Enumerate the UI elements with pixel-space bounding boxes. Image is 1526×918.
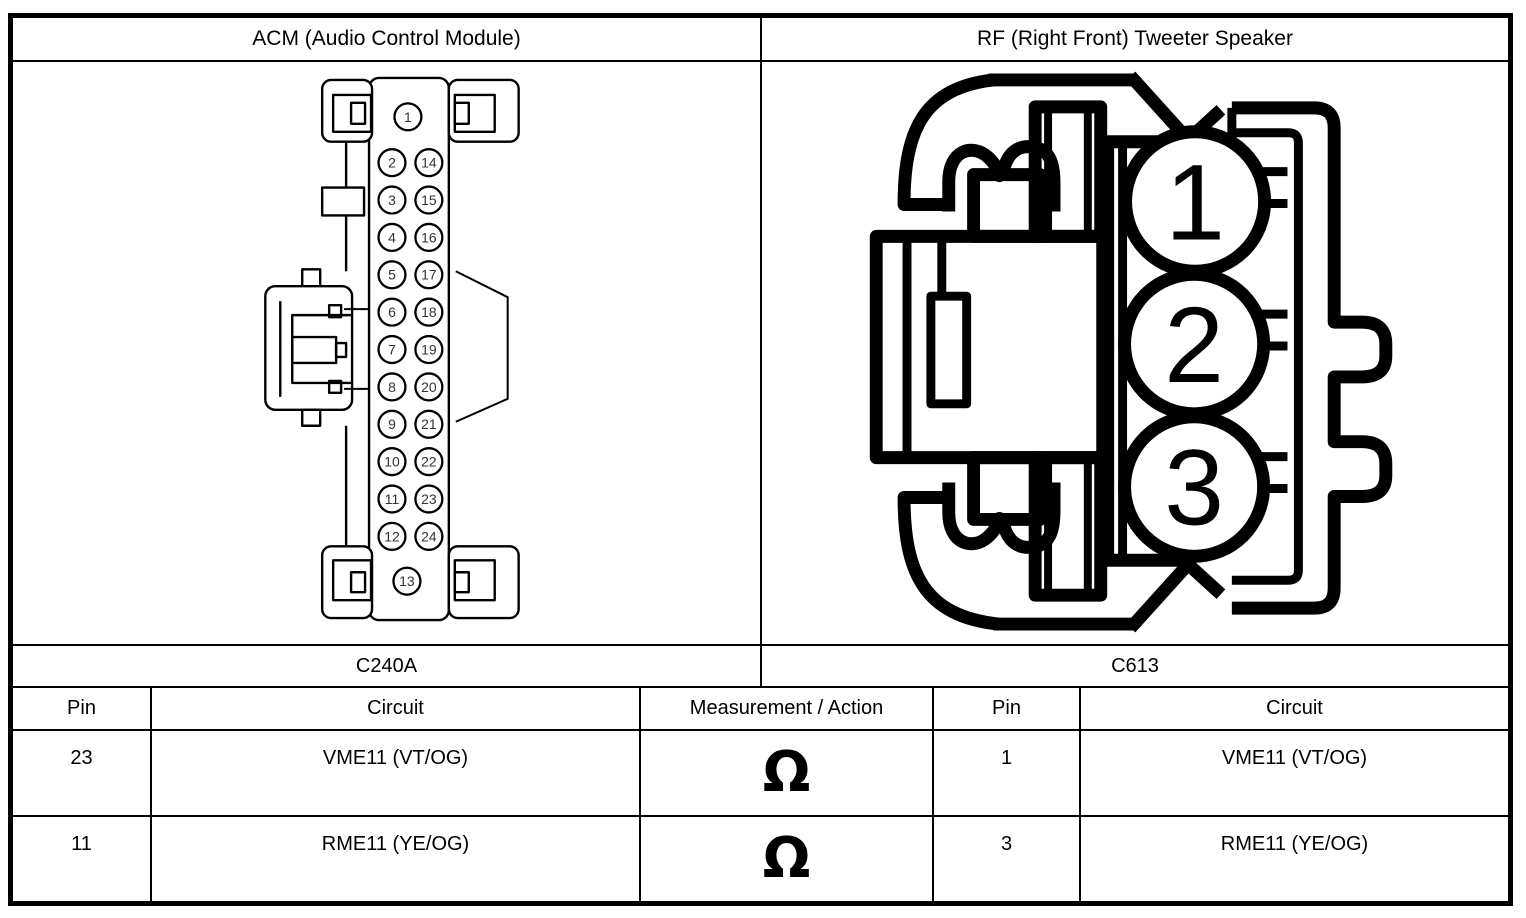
acm-right-wedge: [456, 271, 508, 421]
acm-pin-number: 9: [388, 416, 396, 432]
acm-pin-number: 2: [388, 155, 396, 171]
tweeter-pin-number: 1: [1165, 142, 1225, 262]
tweeter-connector-drawing: 123: [762, 62, 1508, 644]
acm-pin-number: 5: [388, 267, 396, 283]
acm-pin-number: 12: [384, 528, 400, 544]
acm-left-profile: [265, 140, 373, 549]
row1-right-pin: 1: [932, 731, 1079, 815]
tweeter-pin-cavities: 123: [1125, 132, 1288, 557]
acm-pin-number: 4: [388, 229, 396, 245]
row2-right-circuit: RME11 (YE/OG): [1079, 817, 1508, 901]
connector-label-row: C240A C613: [13, 646, 1508, 688]
acm-pin-number: 15: [421, 192, 437, 208]
tweeter-pin-number: 2: [1164, 285, 1224, 405]
table-row: 23 VME11 (VT/OG) Ω 1 VME11 (VT/OG): [13, 731, 1508, 817]
header-pin-left: Pin: [13, 688, 150, 729]
table-row: 11 RME11 (YE/OG) Ω 3 RME11 (YE/OG): [13, 817, 1508, 901]
diagnostic-sheet: ACM (Audio Control Module) RF (Right Fro…: [8, 13, 1513, 906]
acm-pin-number: 3: [388, 192, 396, 208]
acm-pin-number: 23: [421, 491, 437, 507]
pinpoint-test-page: { "panels": { "acm": { "title": "ACM (Au…: [0, 0, 1526, 918]
header-circuit-right: Circuit: [1079, 688, 1508, 729]
acm-pin-number: 14: [421, 155, 437, 171]
acm-pin-number: 1: [404, 109, 412, 125]
acm-pin-number: 6: [388, 304, 396, 320]
row2-ohm-symbol: Ω: [639, 817, 932, 901]
row1-left-circuit: VME11 (VT/OG): [150, 731, 639, 815]
acm-connector-diagram: 121431541651761871982092110221123122413: [13, 62, 762, 644]
tweeter-connector-diagram: 123: [762, 62, 1508, 644]
acm-pin-number: 16: [421, 229, 437, 245]
tweeter-body: [876, 236, 1102, 457]
row1-ohm-symbol: Ω: [639, 731, 932, 815]
acm-pin-number: 8: [388, 379, 396, 395]
row2-left-circuit: RME11 (YE/OG): [150, 817, 639, 901]
row1-left-pin: 23: [13, 731, 150, 815]
tweeter-title: RF (Right Front) Tweeter Speaker: [762, 18, 1508, 60]
row2-left-pin: 11: [13, 817, 150, 901]
acm-pin-number: 19: [421, 341, 437, 357]
title-row: ACM (Audio Control Module) RF (Right Fro…: [13, 18, 1508, 62]
row1-right-circuit: VME11 (VT/OG): [1079, 731, 1508, 815]
acm-pin-number: 21: [421, 416, 437, 432]
header-pin-right: Pin: [932, 688, 1079, 729]
acm-pin-number: 18: [421, 304, 437, 320]
acm-pin-number: 13: [399, 573, 415, 589]
diagram-row: 121431541651761871982092110221123122413: [13, 62, 1508, 646]
acm-pin-number: 22: [421, 454, 437, 470]
tweeter-pin-number: 3: [1164, 427, 1224, 547]
acm-pin-number: 11: [385, 491, 400, 507]
acm-pin-number: 20: [421, 379, 437, 395]
acm-connector-label: C240A: [13, 646, 762, 686]
table-header-row: Pin Circuit Measurement / Action Pin Cir…: [13, 688, 1508, 731]
acm-pin-number: 7: [388, 341, 396, 357]
acm-pin-number: 17: [421, 267, 437, 283]
acm-connector-drawing: 121431541651761871982092110221123122413: [13, 62, 760, 644]
tweeter-connector-label: C613: [762, 646, 1508, 686]
acm-pin-number: 10: [384, 454, 400, 470]
header-circuit-left: Circuit: [150, 688, 639, 729]
tweeter-seal-details: [949, 107, 1101, 595]
row2-right-pin: 3: [932, 817, 1079, 901]
acm-pin-number: 24: [421, 528, 437, 544]
header-measurement-action: Measurement / Action: [639, 688, 932, 729]
acm-title: ACM (Audio Control Module): [13, 18, 762, 60]
